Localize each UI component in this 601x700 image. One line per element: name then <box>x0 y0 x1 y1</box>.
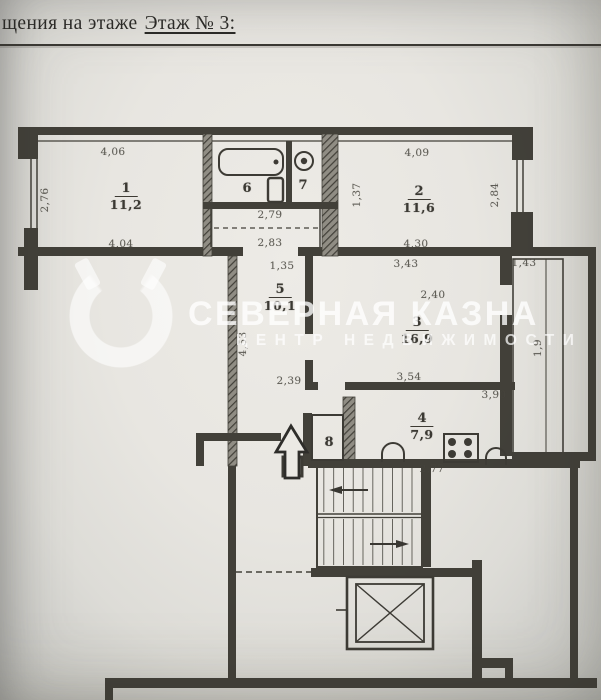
floor-number: Этаж № 3: <box>145 13 236 34</box>
page-title: щения на этажеЭтаж № 3: <box>2 13 236 35</box>
fixtures <box>219 149 506 476</box>
loggia <box>513 259 563 453</box>
closet-room-8 <box>312 415 343 460</box>
door-leaf <box>268 178 283 202</box>
window-lines <box>31 141 523 228</box>
staircase <box>317 466 422 567</box>
stove <box>444 434 478 462</box>
floor-plan-drawing <box>0 0 601 700</box>
header-divider-line <box>0 44 601 46</box>
bathtub <box>219 149 283 175</box>
scanned-floor-plan-page: щения на этажеЭтаж № 3: <box>0 0 601 700</box>
title-prefix: щения на этаже <box>2 13 138 34</box>
elevator-shaft <box>336 577 433 649</box>
bathtub-faucet <box>274 160 279 165</box>
stove-burners <box>448 438 472 458</box>
